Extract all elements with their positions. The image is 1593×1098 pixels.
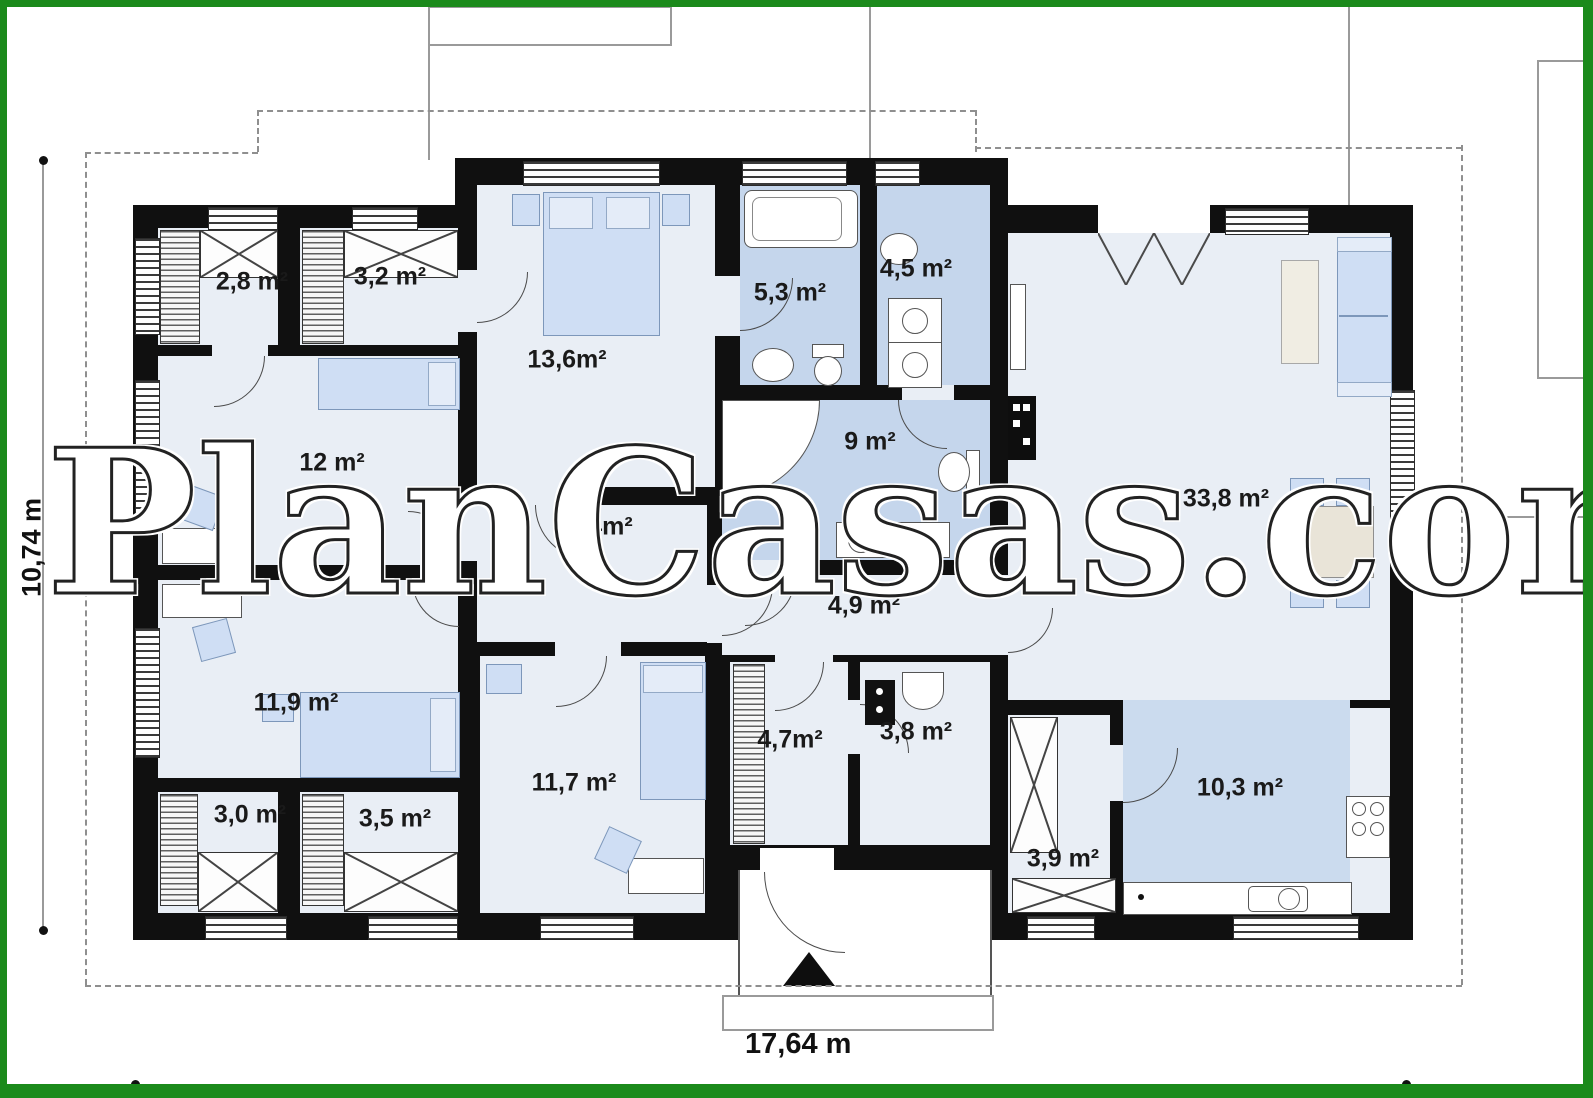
door-opening bbox=[505, 487, 589, 505]
sink bbox=[752, 348, 794, 382]
terrace-outline-right bbox=[1537, 60, 1591, 379]
window bbox=[135, 380, 160, 517]
room-label-3-2: 3,2 m² bbox=[354, 263, 426, 292]
window bbox=[135, 238, 160, 335]
porch-step bbox=[722, 995, 994, 1031]
nightstand bbox=[486, 664, 522, 694]
sofa-armrest bbox=[1337, 382, 1392, 397]
wardrobe-hatch bbox=[160, 230, 200, 344]
property-line bbox=[975, 147, 1462, 149]
pillow bbox=[430, 698, 456, 772]
toilet-bowl bbox=[938, 452, 970, 492]
dimension-dot bbox=[39, 156, 48, 165]
window bbox=[1027, 916, 1095, 940]
height-dimension-label: 10,74 m bbox=[17, 488, 48, 608]
sink-basin-icon bbox=[888, 527, 914, 553]
sink-basin-icon bbox=[848, 527, 874, 553]
entrance-arrow-icon bbox=[783, 952, 835, 986]
terrace-double-door bbox=[1098, 205, 1210, 233]
kitchen-counter bbox=[1123, 882, 1352, 915]
room-label-3-9: 3,9 m² bbox=[1027, 845, 1099, 874]
room-label-10-3: 10,3 m² bbox=[1197, 774, 1283, 803]
window bbox=[742, 161, 847, 186]
dimension-dot bbox=[131, 1080, 140, 1089]
sink-basin-icon bbox=[1278, 888, 1300, 910]
window bbox=[1233, 916, 1359, 940]
wardrobe-hatch bbox=[302, 230, 344, 344]
flue-icon bbox=[1023, 438, 1030, 445]
property-line bbox=[1461, 145, 1463, 985]
desk bbox=[162, 528, 254, 564]
room-label-3-5: 3,5 m² bbox=[359, 805, 431, 834]
front-door-opening bbox=[760, 848, 834, 872]
room-label-9: 9 m² bbox=[844, 428, 895, 457]
pillow bbox=[428, 362, 456, 406]
door-opening bbox=[775, 655, 833, 662]
sofa-cushion-line bbox=[1339, 315, 1388, 317]
dimension-dot bbox=[1402, 1080, 1411, 1089]
window bbox=[352, 207, 418, 230]
window bbox=[875, 161, 920, 186]
flue-icon bbox=[1023, 404, 1030, 411]
door-opening bbox=[1110, 745, 1123, 801]
counter-dot bbox=[1138, 894, 1144, 900]
property-line bbox=[257, 110, 976, 112]
room-label-13-6: 13,6m² bbox=[527, 346, 606, 375]
flue-icon bbox=[1013, 420, 1020, 427]
window bbox=[208, 207, 278, 230]
rug bbox=[1281, 260, 1319, 364]
wc-appliance-dot bbox=[876, 688, 883, 695]
window bbox=[540, 916, 634, 940]
window bbox=[1390, 390, 1415, 567]
dining-table bbox=[1298, 506, 1374, 578]
burner-icon bbox=[1352, 802, 1366, 816]
property-line bbox=[975, 110, 977, 152]
door-opening bbox=[707, 585, 722, 643]
room-label-5-3: 5,3 m² bbox=[754, 279, 826, 308]
pillow bbox=[606, 197, 650, 229]
room-label-11-7: 11,7 m² bbox=[532, 769, 617, 798]
room-label-4-9: 4,9 m² bbox=[828, 592, 900, 621]
sofa-armrest bbox=[1337, 237, 1392, 252]
radiator bbox=[1010, 284, 1026, 370]
dimension-line-bottom bbox=[135, 1084, 1408, 1086]
wardrobe-hatch bbox=[160, 794, 198, 906]
room-label-2-8: 2,8 m² bbox=[216, 268, 288, 297]
room-label-11-9: 11,9 m² bbox=[254, 689, 339, 718]
window bbox=[1225, 208, 1309, 235]
nightstand bbox=[662, 194, 690, 226]
washer-drum-icon bbox=[902, 308, 928, 334]
pantry-xbox bbox=[1012, 878, 1116, 913]
room-label-3-0: 3,0 m² bbox=[214, 801, 286, 830]
door-opening bbox=[745, 560, 800, 575]
window bbox=[135, 628, 160, 758]
door-opening bbox=[420, 565, 458, 580]
room-label-4-7: 4,7m² bbox=[757, 726, 822, 755]
door-opening bbox=[848, 700, 860, 754]
dimension-dot bbox=[39, 926, 48, 935]
nightstand bbox=[512, 194, 540, 226]
dining-chair bbox=[1290, 478, 1324, 506]
room-label-3-8: 3,8 m² bbox=[880, 718, 952, 747]
window bbox=[205, 916, 287, 940]
burner-icon bbox=[1352, 822, 1366, 836]
burner-icon bbox=[1370, 802, 1384, 816]
door-opening bbox=[458, 505, 477, 561]
property-line bbox=[85, 985, 1462, 987]
window bbox=[368, 916, 458, 940]
desk bbox=[628, 858, 704, 894]
wardrobe-xbox bbox=[344, 852, 458, 912]
dining-chair bbox=[1290, 580, 1324, 608]
terrace-edge-line bbox=[428, 42, 430, 160]
pillow bbox=[643, 665, 703, 693]
floor-plan-image: 10,74 m 17,64 m bbox=[0, 0, 1593, 1098]
room-label-4-5: 4,5 m² bbox=[880, 255, 952, 284]
door-opening bbox=[715, 276, 740, 336]
property-line bbox=[85, 152, 87, 985]
terrace-door-leaves-icon bbox=[1098, 233, 1210, 285]
desk bbox=[162, 584, 242, 618]
room-label-33-8: 33,8 m² bbox=[1183, 485, 1269, 514]
room-label-7-4: 7,4m² bbox=[567, 513, 632, 542]
flue-icon bbox=[1013, 404, 1020, 411]
wc-sink bbox=[902, 672, 944, 710]
room-living bbox=[1008, 233, 1390, 700]
dining-chair bbox=[1336, 478, 1370, 506]
bathtub-inner bbox=[752, 197, 842, 241]
window bbox=[523, 161, 660, 186]
toilet-bowl bbox=[814, 356, 842, 386]
burner-icon bbox=[1370, 822, 1384, 836]
door-opening bbox=[458, 270, 477, 332]
property-line bbox=[85, 152, 258, 154]
property-line bbox=[257, 110, 259, 152]
terrace-outline-top bbox=[428, 6, 672, 46]
wc-appliance-dot bbox=[876, 706, 883, 713]
dining-chair bbox=[1336, 580, 1370, 608]
wardrobe-hatch bbox=[302, 794, 344, 906]
room-label-12: 12 m² bbox=[299, 449, 364, 478]
door-opening bbox=[555, 642, 621, 656]
pantry-wardrobe-xbox bbox=[1010, 717, 1058, 853]
pillow bbox=[549, 197, 593, 229]
wardrobe-xbox bbox=[198, 852, 278, 912]
sofa bbox=[1337, 237, 1392, 397]
dryer-drum-icon bbox=[902, 352, 928, 378]
neighbour-line-right bbox=[1482, 516, 1585, 518]
width-dimension-label: 17,64 m bbox=[745, 1028, 851, 1061]
